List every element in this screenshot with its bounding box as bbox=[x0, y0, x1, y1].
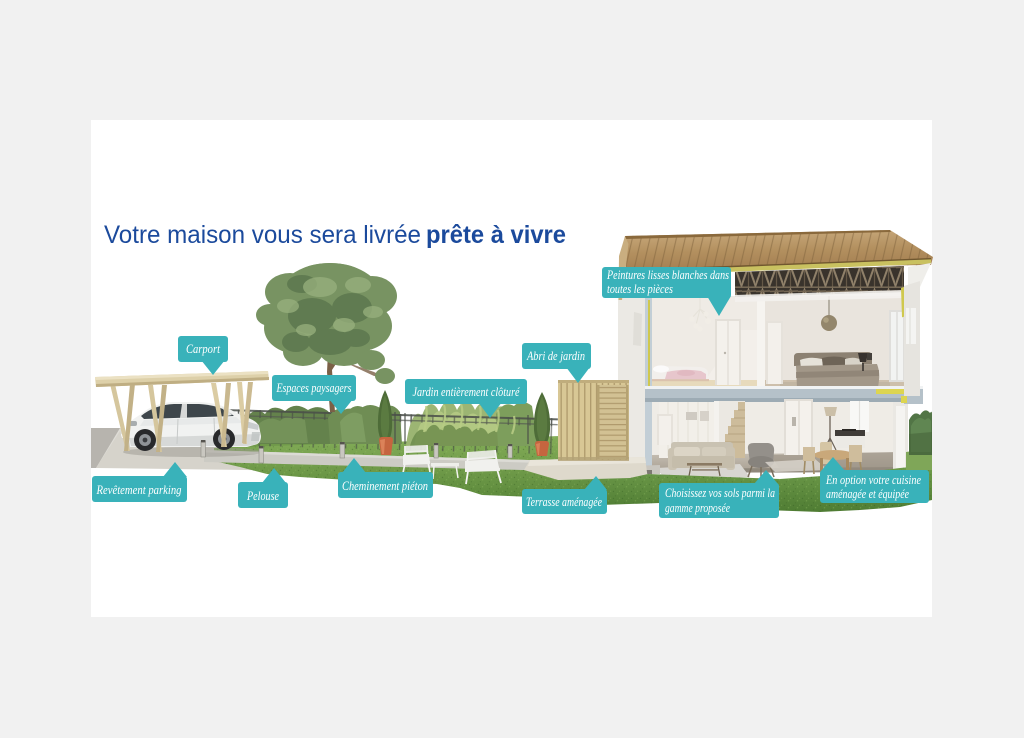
svg-text:toutes les pièces: toutes les pièces bbox=[607, 281, 673, 296]
svg-text:gamme proposée: gamme proposée bbox=[665, 500, 730, 515]
svg-text:Carport: Carport bbox=[186, 341, 220, 356]
svg-text:En option votre cuisine: En option votre cuisine bbox=[825, 472, 921, 487]
svg-text:Peintures lisses blanches dans: Peintures lisses blanches dans bbox=[606, 267, 729, 282]
svg-text:Abri de jardin: Abri de jardin bbox=[526, 348, 585, 363]
svg-text:Terrasse aménagée: Terrasse aménagée bbox=[526, 494, 602, 509]
svg-text:Pelouse: Pelouse bbox=[246, 488, 279, 503]
svg-text:Choisissez vos sols parmi la: Choisissez vos sols parmi la bbox=[665, 485, 775, 500]
svg-text:aménagée et équipée: aménagée et équipée bbox=[826, 486, 909, 501]
svg-text:Cheminement piéton: Cheminement piéton bbox=[342, 478, 428, 493]
svg-text:Jardin entièrement clôturé: Jardin entièrement clôturé bbox=[413, 384, 521, 399]
svg-text:Revêtement parking: Revêtement parking bbox=[96, 482, 182, 497]
svg-text:Espaces paysagers: Espaces paysagers bbox=[276, 380, 352, 395]
svg-text:Votre maison vous sera livrée: Votre maison vous sera livrée bbox=[104, 221, 421, 249]
svg-text:prête à vivre: prête à vivre bbox=[426, 221, 566, 249]
